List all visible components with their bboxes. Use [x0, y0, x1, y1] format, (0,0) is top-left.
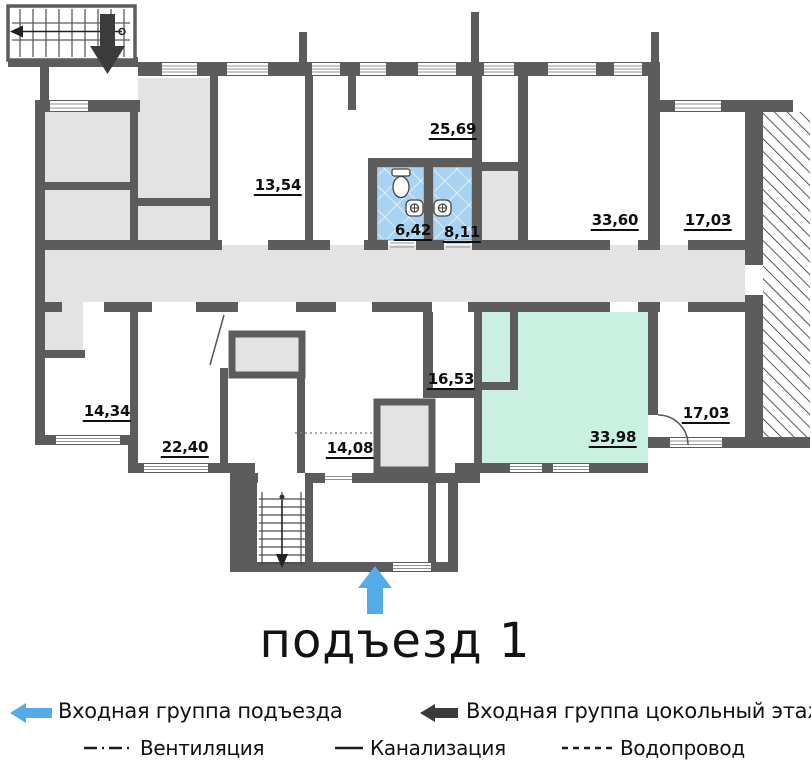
room-area-label-13-54: 13,54: [254, 178, 302, 196]
legend-dark-arrow-icon: [420, 703, 458, 723]
entrance-title: подъезд 1: [260, 613, 531, 669]
entrance-arrow-icon: [358, 566, 392, 614]
legend-blue-arrow-icon: [10, 702, 52, 724]
legend-water-line-icon: [562, 745, 612, 751]
room-area-label-6-42: 6,42: [394, 223, 432, 241]
legend-entrance-main-label: Входная группа подъезда: [58, 699, 342, 723]
floor-plan-page: 25,69 13,54 6,42 8,11 33,60 17,03 14,34 …: [0, 0, 811, 768]
room-area-label-33-60: 33,60: [591, 213, 639, 231]
room-area-label-33-98: 33,98: [589, 430, 637, 448]
toilet-icon: [392, 169, 410, 198]
room-area-label-17-03-top: 17,03: [684, 213, 732, 231]
shaft-block-2: [377, 402, 432, 470]
legend-sewerage-label: Канализация: [370, 736, 506, 760]
shaft-block-1: [232, 334, 302, 375]
legend-ventilation-line-icon: [84, 745, 134, 751]
lower-staircase: [259, 492, 305, 568]
room-area-label-22-40: 22,40: [161, 440, 209, 458]
exterior-ramp-hatch: [763, 112, 810, 437]
room-area-label-16-53: 16,53: [427, 372, 475, 390]
room-area-label-25-69: 25,69: [429, 122, 477, 140]
legend-water-label: Водопровод: [620, 736, 745, 760]
floor-plan: [0, 0, 811, 692]
room-area-label-8-11: 8,11: [443, 225, 481, 243]
room-area-label-17-03-bottom: 17,03: [682, 406, 730, 424]
room-area-label-14-08: 14,08: [326, 441, 374, 459]
room-area-label-14-34: 14,34: [83, 404, 131, 422]
legend-entrance-basement-label: Входная группа цокольный этаж: [466, 699, 811, 723]
legend-ventilation-label: Вентиляция: [140, 736, 264, 760]
legend-sewerage-line-icon: [335, 745, 363, 751]
